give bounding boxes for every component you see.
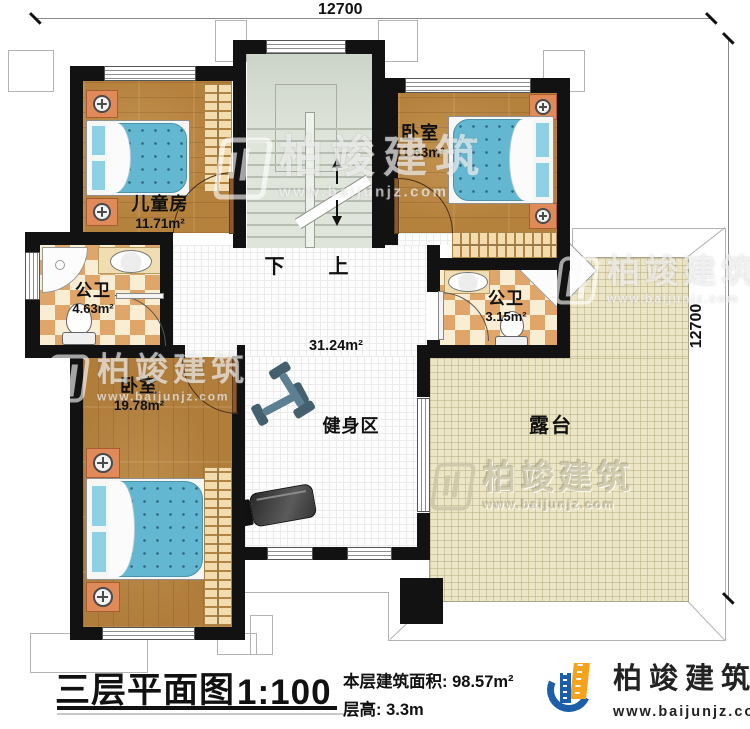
toilet-tank bbox=[62, 332, 96, 345]
floor-height-value: 3.3m bbox=[386, 701, 424, 719]
floor-area-line: 本层建筑面积: 98.57m² bbox=[343, 668, 514, 692]
room-area: 19.78m² bbox=[89, 398, 189, 414]
terrace-column bbox=[400, 578, 443, 624]
dimension-line-right bbox=[728, 38, 729, 600]
room-area: 11.63m² bbox=[370, 145, 470, 161]
parapet-outline bbox=[573, 228, 725, 229]
terrace-sliding-door bbox=[417, 398, 430, 512]
hall-floor bbox=[398, 233, 452, 245]
lamp-icon bbox=[93, 203, 111, 221]
door-leaf bbox=[232, 358, 237, 413]
terrace-border bbox=[430, 601, 689, 602]
wall bbox=[70, 66, 83, 232]
title-underline bbox=[57, 706, 337, 710]
room-label-bath-left: 公卫 4.63m² bbox=[53, 281, 133, 317]
room-label-gym: 健身区 bbox=[301, 416, 401, 438]
wall bbox=[70, 345, 185, 358]
pillow bbox=[91, 160, 106, 191]
bed bbox=[86, 478, 206, 580]
door-leaf bbox=[394, 178, 399, 234]
wardrobe bbox=[452, 232, 557, 258]
parapet-corner-line bbox=[688, 227, 726, 257]
room-name: 卧室 bbox=[89, 376, 189, 398]
stair-railing bbox=[305, 112, 315, 248]
door-leaf bbox=[229, 172, 234, 234]
stair-up-text: 上 bbox=[325, 255, 353, 279]
room-area: 4.63m² bbox=[53, 301, 133, 317]
room-label-terrace: 露台 bbox=[501, 414, 601, 438]
wall bbox=[233, 232, 245, 245]
wardrobe bbox=[204, 467, 232, 625]
floor-area-value: 98.57m² bbox=[452, 673, 513, 691]
wall bbox=[25, 232, 40, 252]
room-name: 公卫 bbox=[53, 281, 133, 301]
floor-area-label: 本层建筑面积: bbox=[343, 673, 448, 691]
stair-down-arrow-icon bbox=[332, 216, 342, 226]
window bbox=[266, 40, 346, 54]
room-name: 卧室 bbox=[370, 123, 470, 145]
parapet-outline bbox=[388, 640, 726, 641]
brand-logo-icon bbox=[545, 660, 605, 718]
logo-building-blue bbox=[560, 673, 571, 703]
room-name: 公卫 bbox=[466, 289, 546, 309]
exterior-ledge bbox=[250, 615, 273, 655]
room-label-bath-right: 公卫 3.15m² bbox=[466, 289, 546, 325]
wall bbox=[195, 627, 245, 640]
dimension-line-top bbox=[35, 18, 712, 19]
pillow bbox=[91, 531, 107, 573]
parapet-outline bbox=[725, 228, 726, 641]
stair-down-label: 下 bbox=[261, 255, 289, 279]
wall bbox=[427, 245, 440, 292]
title-underline-shadow bbox=[57, 713, 344, 715]
terrace-border bbox=[570, 257, 688, 258]
shower-drain-icon bbox=[55, 260, 65, 270]
terrace-floor bbox=[430, 358, 688, 602]
door-leaf bbox=[438, 291, 444, 340]
window bbox=[267, 547, 313, 560]
brand-name: 柏竣建筑 bbox=[613, 665, 750, 694]
window bbox=[104, 66, 196, 81]
wall bbox=[70, 232, 173, 245]
gym-area-label: 31.24m² bbox=[286, 338, 386, 355]
dimension-right-label: 12700 bbox=[688, 296, 706, 356]
nightstand bbox=[529, 203, 557, 229]
pillow bbox=[535, 122, 550, 158]
nightstand bbox=[86, 448, 120, 478]
lamp-icon bbox=[93, 95, 111, 113]
bed bbox=[86, 120, 190, 196]
lamp-icon bbox=[535, 99, 551, 115]
lamp-icon bbox=[93, 453, 113, 473]
wall bbox=[70, 345, 83, 640]
patio-edge-line bbox=[242, 592, 388, 593]
stair-arrow-stem bbox=[336, 167, 338, 184]
room-label-kids: 儿童房 11.71m² bbox=[110, 194, 210, 232]
window bbox=[347, 547, 392, 560]
window bbox=[25, 252, 40, 300]
wall bbox=[427, 345, 570, 358]
window bbox=[405, 78, 531, 93]
wall bbox=[242, 547, 267, 560]
room-label-bedroom-bottom: 卧室 19.78m² bbox=[89, 376, 189, 414]
wall bbox=[233, 40, 246, 248]
room-name: 露台 bbox=[501, 414, 601, 438]
wall bbox=[557, 78, 570, 358]
room-label-bedroom-top: 卧室 11.63m² bbox=[370, 123, 470, 161]
pillow bbox=[535, 162, 550, 198]
room-name: 健身区 bbox=[301, 416, 401, 438]
room-area: 3.15m² bbox=[466, 309, 546, 325]
floor-height-line: 层高: 3.3m bbox=[343, 696, 424, 720]
stair-down-text: 下 bbox=[261, 255, 289, 279]
room-name: 儿童房 bbox=[110, 194, 210, 216]
treadmill-belt bbox=[248, 483, 317, 528]
wall bbox=[417, 513, 430, 560]
exterior-ledge bbox=[8, 50, 54, 92]
lamp-icon bbox=[93, 587, 113, 607]
pillow bbox=[91, 125, 106, 156]
wall bbox=[440, 258, 570, 270]
wall bbox=[70, 627, 102, 640]
brand-site: www.baijunjz.com bbox=[613, 704, 750, 720]
room-area: 11.71m² bbox=[110, 216, 210, 232]
dimension-top-label: 12700 bbox=[318, 1, 363, 19]
wall bbox=[313, 547, 347, 560]
stair-arrow-stem bbox=[336, 200, 338, 217]
wall bbox=[385, 78, 405, 93]
stair-up-label: 上 bbox=[325, 255, 353, 279]
room-area: 31.24m² bbox=[286, 338, 386, 355]
floor-height-label: 层高: bbox=[343, 701, 382, 719]
sink bbox=[110, 250, 152, 273]
window bbox=[102, 627, 195, 640]
nightstand bbox=[86, 582, 120, 612]
pillow bbox=[91, 485, 107, 527]
floor-plan: 12700 12700 bbox=[0, 0, 750, 729]
lamp-icon bbox=[535, 208, 551, 224]
patio-edge-line bbox=[388, 592, 389, 641]
nightstand bbox=[86, 90, 118, 118]
parapet-corner-line bbox=[688, 601, 726, 641]
